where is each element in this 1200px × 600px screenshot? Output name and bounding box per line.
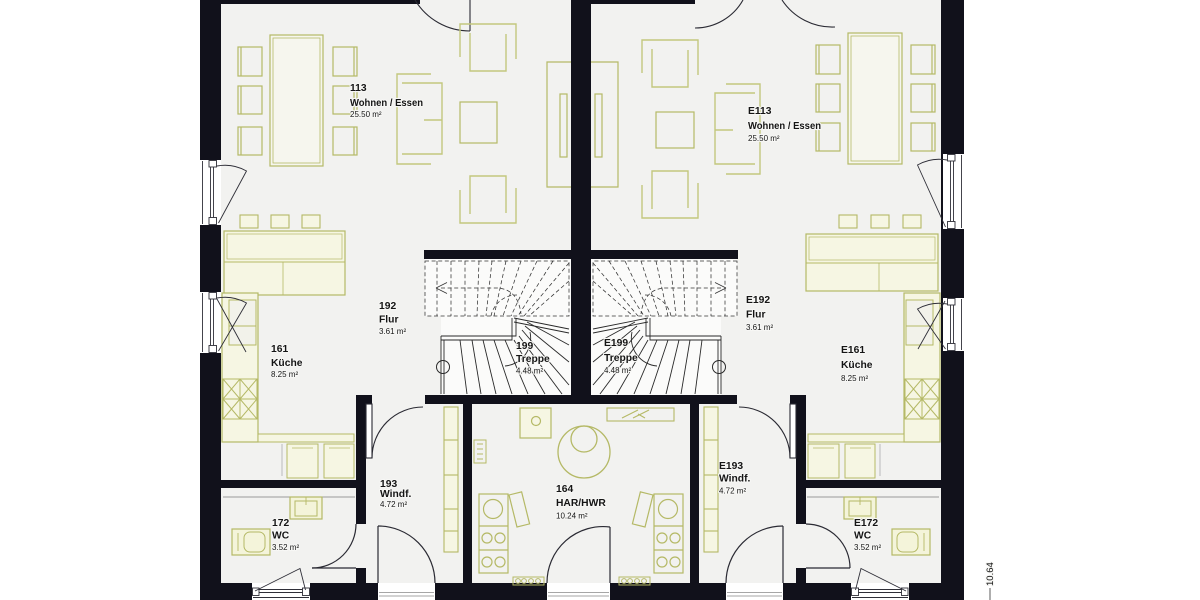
svg-text:25.50 m²: 25.50 m²	[350, 110, 382, 119]
svg-text:Küche: Küche	[271, 358, 303, 369]
svg-text:E199: E199	[604, 338, 628, 349]
svg-text:192: 192	[379, 301, 396, 312]
svg-text:Flur: Flur	[379, 315, 398, 326]
svg-text:3.52 m²: 3.52 m²	[854, 543, 881, 552]
svg-text:E161: E161	[841, 345, 865, 356]
svg-text:HAR/HWR: HAR/HWR	[556, 498, 606, 509]
svg-text:E192: E192	[746, 295, 770, 306]
svg-text:Wohnen / Essen: Wohnen / Essen	[748, 121, 821, 132]
svg-text:4.72 m²: 4.72 m²	[380, 500, 407, 509]
svg-text:3.61 m²: 3.61 m²	[746, 323, 773, 332]
svg-text:4.48 m²: 4.48 m²	[516, 367, 543, 376]
svg-text:E113: E113	[748, 106, 772, 117]
svg-text:Windf.: Windf.	[380, 489, 411, 500]
svg-text:199: 199	[516, 341, 533, 352]
svg-text:WC: WC	[272, 531, 290, 542]
svg-text:8.25 m²: 8.25 m²	[271, 370, 298, 379]
svg-text:Windf.: Windf.	[719, 474, 750, 485]
svg-text:172: 172	[272, 518, 289, 529]
svg-text:WC: WC	[854, 531, 872, 542]
svg-text:10.24 m²: 10.24 m²	[556, 512, 588, 521]
svg-text:25.50 m²: 25.50 m²	[748, 134, 780, 143]
svg-text:3.52 m²: 3.52 m²	[272, 543, 299, 552]
svg-text:113: 113	[350, 83, 367, 94]
svg-text:4.48 m²: 4.48 m²	[604, 366, 631, 375]
svg-text:Treppe: Treppe	[516, 354, 550, 365]
svg-text:Treppe: Treppe	[604, 353, 638, 364]
svg-text:E172: E172	[854, 518, 878, 529]
svg-text:10.64: 10.64	[985, 562, 996, 586]
svg-text:4.72 m²: 4.72 m²	[719, 487, 746, 496]
svg-text:Wohnen / Essen: Wohnen / Essen	[350, 98, 423, 109]
svg-text:164: 164	[556, 484, 573, 495]
svg-text:Küche: Küche	[841, 360, 873, 371]
svg-text:8.25 m²: 8.25 m²	[841, 374, 868, 383]
svg-text:E193: E193	[719, 461, 743, 472]
svg-text:3.61 m²: 3.61 m²	[379, 327, 406, 336]
svg-text:161: 161	[271, 344, 288, 355]
svg-text:Flur: Flur	[746, 310, 765, 321]
